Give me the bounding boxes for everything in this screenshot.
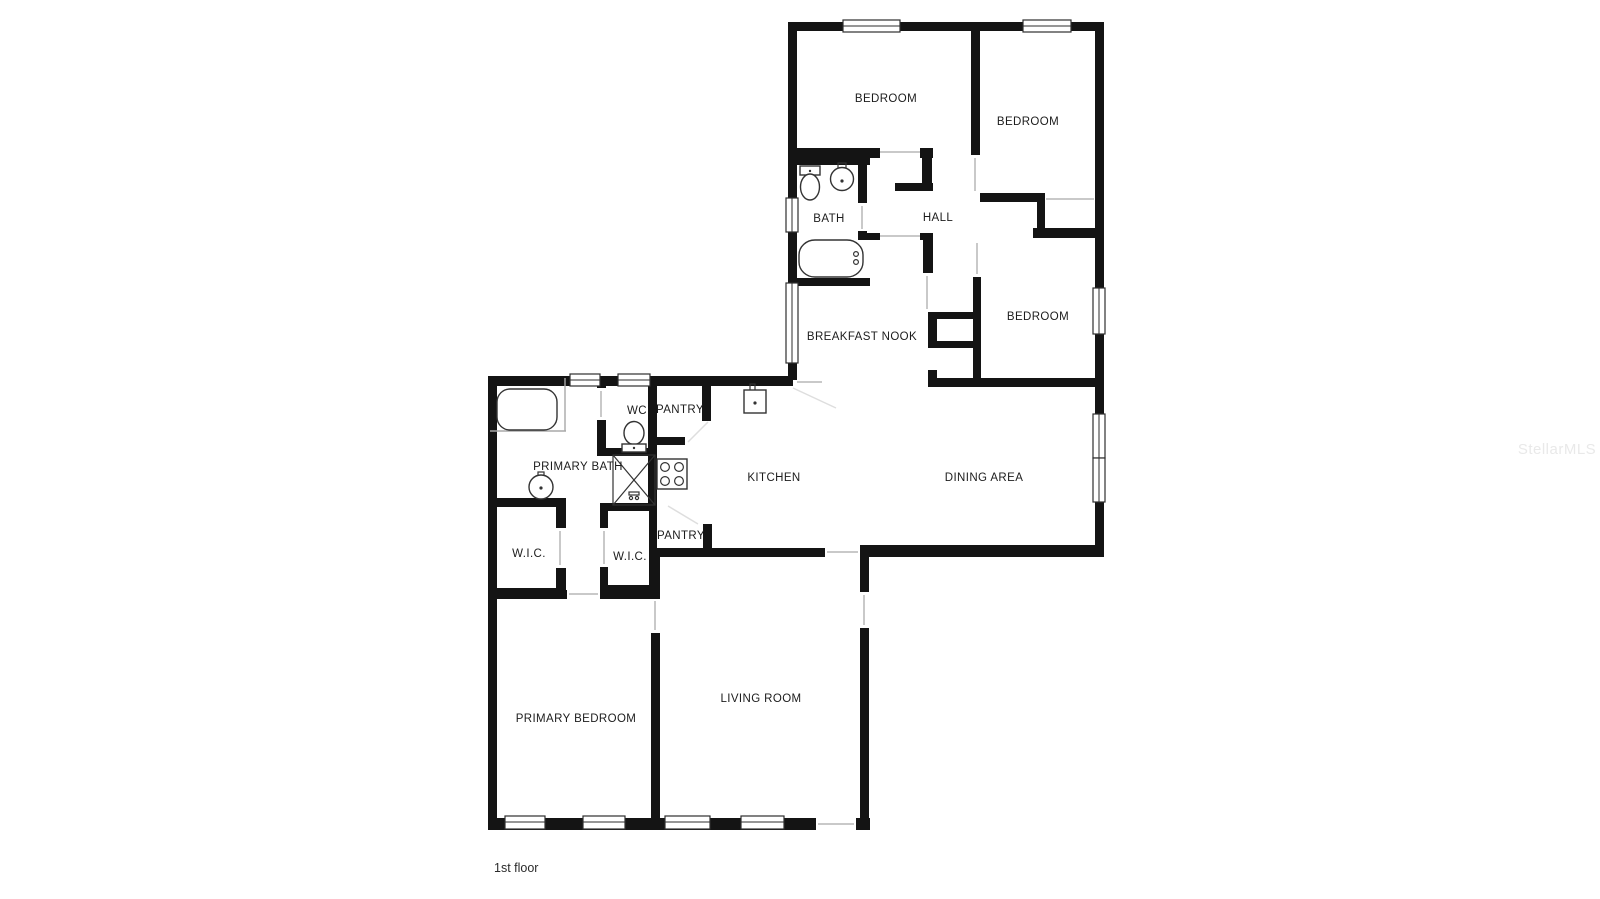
wall-segment: [928, 341, 977, 348]
window-icon: [505, 816, 545, 829]
walls: [488, 22, 1104, 830]
wall-segment: [860, 545, 1104, 557]
room-label-primary-bedroom: PRIMARY BEDROOM: [516, 713, 637, 725]
window-icon: [786, 283, 798, 363]
stove-icon: [657, 459, 687, 489]
wall-segment: [652, 548, 825, 557]
wall-segment: [973, 277, 981, 387]
wall-segment: [971, 31, 980, 155]
sink-icon: [831, 163, 854, 191]
wall-segment: [651, 557, 660, 598]
wall-segment: [488, 498, 566, 507]
sink-icon: [529, 472, 553, 499]
wall-segment: [863, 233, 880, 240]
room-label-hall: HALL: [923, 212, 954, 224]
wall-segment: [488, 376, 497, 830]
kitchen-sink-icon: [744, 384, 766, 413]
wall-segment: [652, 437, 685, 445]
room-label-bath: BATH: [813, 213, 844, 225]
window-icon: [843, 20, 900, 32]
wall-segment: [895, 183, 933, 191]
wall-segment: [928, 370, 937, 387]
bathtub-icon: [799, 240, 863, 277]
wall-segment: [870, 148, 880, 158]
wall-segment: [651, 633, 660, 820]
window-icon: [1093, 288, 1105, 334]
window-icon: [570, 374, 600, 386]
window-icon: [1023, 20, 1071, 32]
wall-segment: [923, 233, 933, 273]
window-icon: [1093, 458, 1105, 502]
room-label-primary-bath: PRIMARY BATH: [533, 461, 623, 473]
room-label-dining-area: DINING AREA: [945, 472, 1024, 484]
windows: [505, 20, 1105, 829]
window-icon: [1093, 414, 1105, 458]
wall-segment: [1033, 228, 1104, 238]
watermark: StellarMLS: [1518, 441, 1596, 458]
wall-segment: [980, 193, 1045, 202]
room-label-wic-left: W.I.C.: [512, 548, 546, 560]
window-icon: [741, 816, 784, 829]
wall-segment: [928, 312, 977, 319]
room-label-breakfast-nook: BREAKFAST NOOK: [807, 331, 917, 343]
room-label-wc: WC: [627, 405, 647, 417]
wall-segment: [788, 278, 870, 286]
window-icon: [665, 816, 710, 829]
wall-segment: [858, 165, 867, 203]
room-label-pantry-lower: PANTRY: [657, 530, 705, 542]
room-label-bedroom-3: BEDROOM: [1007, 311, 1069, 323]
floor-plan-page: BEDROOM BEDROOM BEDROOM BATH HALL BREAKF…: [0, 0, 1600, 899]
floor-plan-drawing: BEDROOM BEDROOM BEDROOM BATH HALL BREAKF…: [0, 0, 1600, 899]
window-icon: [786, 198, 798, 232]
room-label-bedroom-1: BEDROOM: [855, 93, 917, 105]
floor-title: 1st floor: [494, 861, 538, 875]
wall-segment: [797, 148, 870, 165]
window-icon: [618, 374, 650, 386]
room-label-living-room: LIVING ROOM: [720, 693, 801, 705]
room-label-wic-right: W.I.C.: [613, 551, 647, 563]
wall-segment: [488, 590, 567, 599]
toilet-icon: [622, 422, 646, 453]
wall-segment: [556, 498, 566, 528]
wall-segment: [1037, 193, 1045, 232]
toilet-icon: [800, 166, 820, 200]
window-icon: [583, 816, 625, 829]
wall-segment: [600, 503, 657, 511]
room-label-pantry-upper: PANTRY: [656, 404, 704, 416]
room-label-kitchen: KITCHEN: [747, 472, 800, 484]
wall-segment: [860, 628, 869, 830]
room-label-bedroom-2: BEDROOM: [997, 116, 1059, 128]
wall-segment: [928, 378, 1104, 387]
